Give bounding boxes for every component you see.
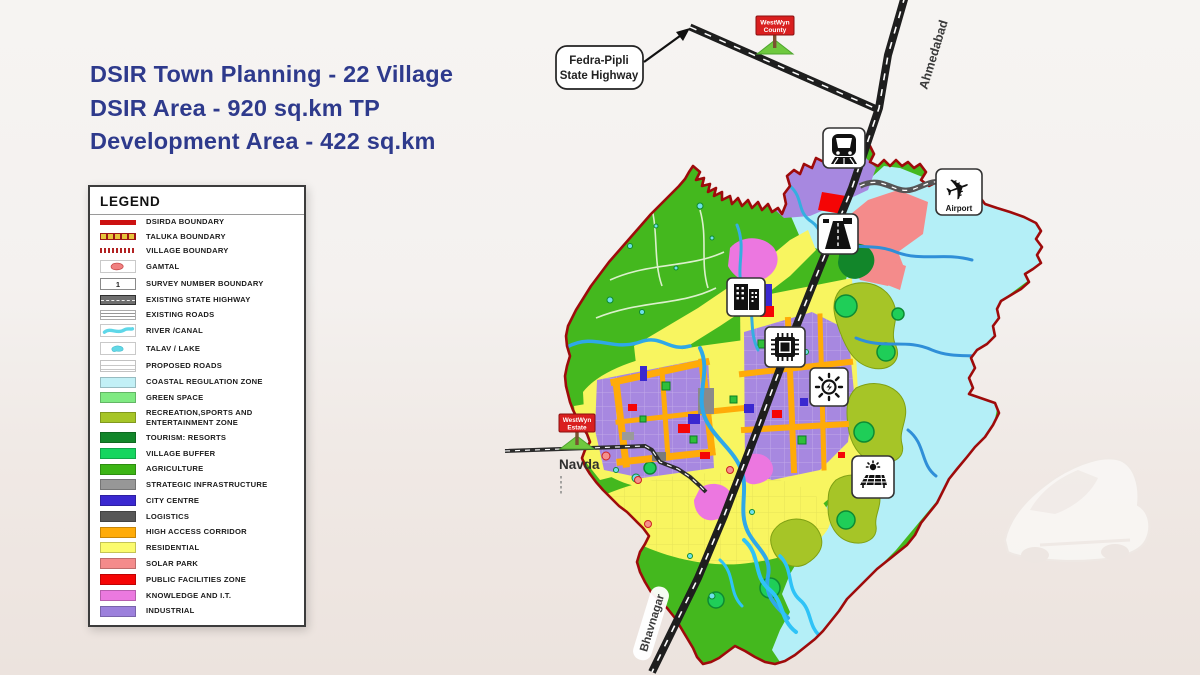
energy-icon: [810, 368, 848, 406]
highway-callout: Fedra-Pipli State Highway: [556, 28, 690, 89]
planning-poster: DSIR Town Planning - 22 Village DSIR Are…: [0, 0, 1200, 675]
navda-label: Navda: [559, 457, 600, 472]
estate-sign-line-2: Estate: [567, 425, 587, 432]
map-figure: Fedra-Pipli State Highway WestWyn County…: [0, 0, 1200, 675]
estate-sign-line-1: WestWyn: [563, 417, 592, 424]
train-icon: [823, 128, 865, 168]
fedra-pipli-highway: [690, 27, 879, 110]
airport-label: Airport: [946, 204, 973, 213]
expressway-icon: [818, 214, 858, 254]
background-car: [1005, 458, 1149, 563]
ahmedabad-label: Ahmedabad: [916, 18, 950, 91]
callout-line-2: State Highway: [560, 70, 639, 82]
city-centre-icon: [727, 278, 765, 316]
it-chip-icon: [765, 327, 805, 367]
airport-icon: ✈ Airport: [936, 169, 982, 215]
solar-park-icon: [852, 456, 894, 498]
county-sign-line-1: WestWyn: [760, 20, 789, 27]
westwyn-county-sign: WestWyn County: [756, 16, 794, 54]
callout-line-1: Fedra-Pipli: [569, 55, 628, 67]
county-sign-line-2: County: [764, 27, 787, 34]
